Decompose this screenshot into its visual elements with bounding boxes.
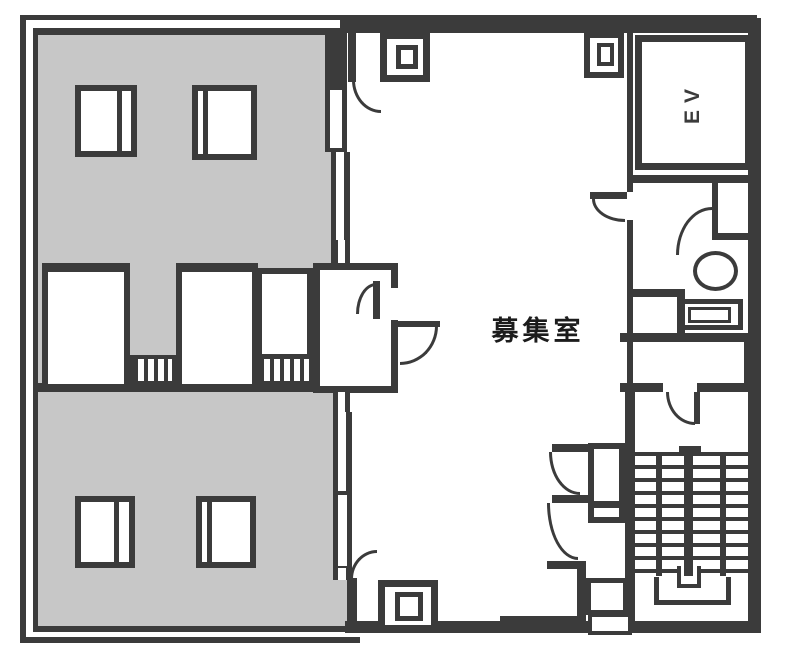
window [192, 85, 257, 160]
sink-basin [688, 307, 731, 323]
duct-wall [712, 183, 718, 239]
window-sash [117, 91, 122, 151]
wall-cavity [338, 392, 345, 412]
wall-cavity [338, 412, 346, 493]
closet-room [256, 268, 313, 360]
room [176, 263, 258, 390]
wall-stub [347, 578, 357, 632]
stair-stringer [720, 452, 726, 576]
door-leaf [348, 30, 356, 82]
hatch-strip [256, 355, 313, 385]
door-swing-arc [352, 80, 381, 113]
window [75, 85, 137, 157]
pillar-core [395, 592, 423, 621]
pillar-core [396, 45, 418, 69]
slit-window-upper [325, 86, 347, 152]
elevator-label: EV [681, 81, 705, 123]
vestibule-wall [552, 444, 592, 452]
floor-plan: EV [0, 0, 787, 671]
vestibule-wall [552, 495, 592, 503]
stair-center-rail [684, 446, 693, 566]
shaft-box [588, 443, 625, 523]
cavity-wall [346, 412, 352, 493]
vacant-room-label: 募集室 [478, 310, 598, 346]
door-swing-arc [676, 207, 712, 255]
door-swing-arc [547, 503, 578, 560]
wall-thick-segment [500, 616, 585, 633]
stair-landing-return [654, 577, 731, 605]
cavity-wall [345, 392, 350, 412]
unit-wall-top [33, 28, 347, 35]
door-swing-arc [549, 452, 580, 495]
elevator-shaft: EV [635, 35, 752, 170]
cabinet [586, 578, 628, 615]
hatch-strip [130, 355, 176, 385]
room [42, 263, 130, 390]
outer-wall-bottom-left [20, 637, 360, 643]
wall-cavity [338, 240, 345, 263]
toilet-bowl [693, 251, 738, 291]
unit-wall-left [33, 28, 38, 632]
door-swing-arc [400, 326, 438, 365]
window-sash [207, 502, 212, 562]
duct-wall [712, 233, 752, 240]
shaft-box-divider [588, 501, 625, 508]
corridor-wall-top [620, 333, 761, 342]
pillar-core [597, 43, 614, 66]
vestibule-wall [547, 561, 586, 569]
doorway-opening [663, 383, 697, 392]
ev-enclosure-wall [627, 33, 633, 177]
window [75, 496, 135, 568]
step-box [588, 613, 632, 635]
outer-wall-left [20, 15, 26, 643]
window [196, 496, 256, 568]
window-sash [203, 91, 208, 154]
unit-wall-bottom [33, 626, 353, 632]
toilet-wall-top [627, 175, 760, 183]
wall-cavity [338, 568, 346, 580]
cavity-wall [346, 568, 352, 580]
slit-window-lower [333, 491, 352, 570]
corridor-wall-inner [744, 342, 749, 383]
corridor [633, 342, 744, 383]
wall-top-right [340, 18, 761, 33]
cavity-wall [345, 240, 350, 263]
stair-treads [635, 452, 752, 578]
door-swing-arc [666, 392, 695, 425]
window-sash [114, 502, 119, 562]
stair-stringer [656, 452, 662, 576]
stair-center-rail-end [684, 566, 693, 576]
door-leaf [590, 192, 627, 199]
door-swing-arc [350, 550, 377, 579]
entry-room [313, 263, 398, 393]
door-swing-arc [592, 199, 625, 222]
unit-wall-right-upper [325, 28, 347, 88]
closet-wall [627, 289, 684, 297]
toilet-wall-left [627, 220, 633, 342]
toilet-wall-left [627, 183, 633, 192]
doorway-opening [391, 288, 398, 320]
